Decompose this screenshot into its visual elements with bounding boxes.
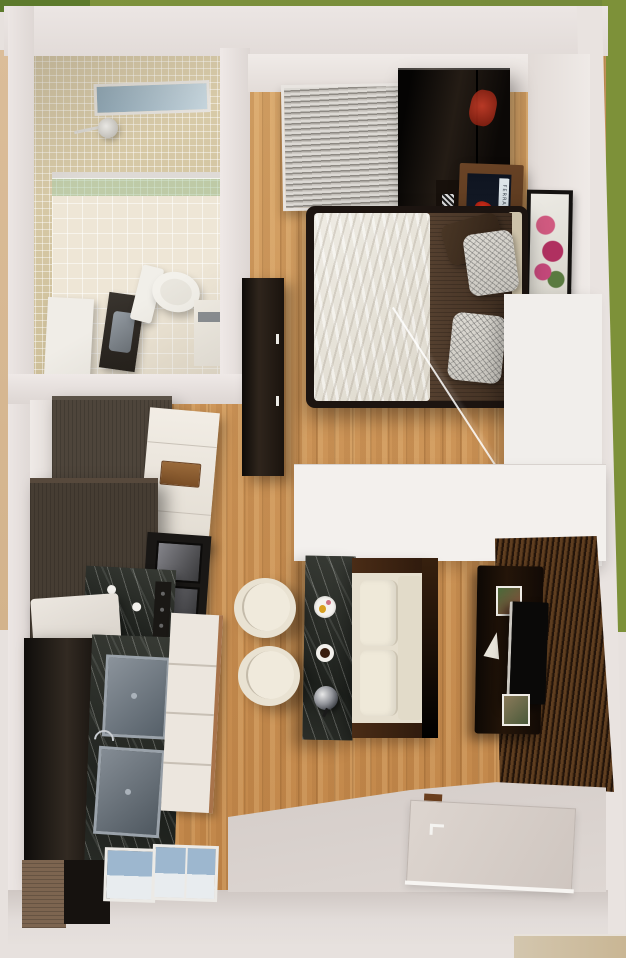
- sofa-seat-back: [398, 576, 422, 720]
- drain-2: [125, 789, 131, 795]
- stool-2-seat: [246, 651, 294, 699]
- drawer-unit: [161, 613, 223, 813]
- front-door: [406, 800, 576, 893]
- knob: [161, 592, 165, 596]
- dresser-handle-2: [276, 396, 279, 406]
- stool-1: [234, 578, 296, 638]
- kitchen-sink-2: [93, 746, 165, 838]
- food-item-2: [326, 600, 331, 605]
- knob-2: [160, 608, 164, 612]
- door-handle-stem: [430, 824, 434, 835]
- wall-tv: [506, 601, 549, 704]
- base-cabinet-wood: [22, 860, 66, 928]
- drawer-line: [169, 662, 217, 667]
- sofa-cushion-2: [360, 650, 398, 716]
- window-blinds: [281, 83, 413, 211]
- knob-panel: [152, 581, 171, 642]
- dresser: [242, 278, 284, 476]
- red-jacket: [467, 88, 500, 129]
- breakfast-plate: [314, 596, 336, 618]
- bathroom-shading: [28, 54, 228, 384]
- knob-3: [159, 624, 163, 628]
- coffee: [320, 648, 330, 658]
- bathroom: [28, 54, 228, 384]
- pillow-marble-2: [447, 311, 508, 384]
- stool-1-seat: [242, 583, 290, 631]
- kitchen-sink-1: [102, 654, 170, 739]
- kettle: [314, 686, 338, 710]
- porch-step: [514, 934, 626, 958]
- apartment-render: FERRARI: [0, 0, 626, 958]
- drawer-line-2: [166, 712, 214, 717]
- coffee-cup: [316, 644, 334, 662]
- bed: [306, 206, 528, 408]
- pillow-marble-1: [462, 229, 520, 297]
- south-window-1: [103, 847, 157, 903]
- burner-2: [132, 602, 141, 611]
- drain: [131, 693, 137, 699]
- fridge-handle: [159, 460, 201, 487]
- dresser-handle: [276, 334, 279, 344]
- flower-art-frame: [525, 190, 573, 303]
- sofa-cushion-1: [360, 580, 398, 646]
- wall-north: [4, 6, 608, 56]
- stool-2: [238, 646, 300, 706]
- fridge-gap-line: [147, 441, 217, 448]
- food-item: [319, 605, 326, 613]
- art-frame-small-2: [502, 694, 530, 726]
- sofa-frame-back: [422, 558, 438, 738]
- window-mullion: [184, 848, 188, 898]
- sofa: [352, 558, 438, 738]
- bed-duvet: [314, 213, 430, 401]
- drawer-line-3: [163, 761, 211, 766]
- south-window-2: [151, 844, 219, 902]
